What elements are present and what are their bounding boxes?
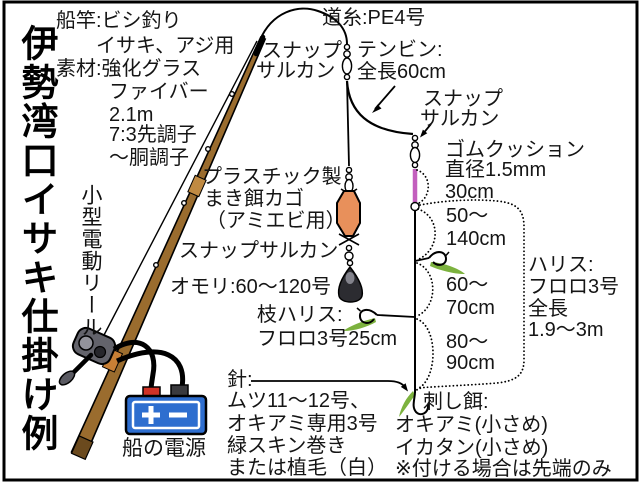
segment2-label-1: 60〜 (446, 274, 488, 296)
bait-label-3: イカタン(小さめ) (395, 437, 548, 459)
snap-swivel-right (410, 135, 419, 167)
snap-top-label-2: サルカン (256, 60, 335, 82)
harisu-label-2: フロロ3号 (528, 276, 619, 298)
material-label-4: 7:3先調子 (109, 124, 197, 146)
segment2-label-2: 70cm (446, 297, 495, 319)
rod-use-label-2: イサキ、アジ用 (96, 35, 234, 57)
reel-label: 小型電動リール (75, 184, 105, 338)
main-line-label: 道糸:PE4号 (322, 7, 425, 29)
hook-label-3: オキアミ専用3号 (227, 413, 378, 435)
power-label: 船の電源 (122, 438, 206, 460)
fishing-rig-diagram: 伊勢湾口イサキ仕掛け例 小型電動リール 船竿:ビシ釣り イサキ、アジ用 素材:強… (0, 0, 640, 486)
cage-label-3: （アミエビ用） (206, 210, 346, 232)
sinker-highlight (346, 272, 355, 284)
harisu-label-1: ハリス: (528, 254, 594, 276)
battery-minus-icon (169, 413, 187, 418)
cage-label-2: まき餌カゴ (204, 188, 304, 210)
material-label-5: 〜胴調子 (109, 147, 189, 169)
material-label-1: 素材:強化グラス (56, 58, 201, 80)
boat-battery (126, 385, 206, 434)
rod-use-label-1: 船竿:ビシ釣り (56, 10, 182, 32)
cushion-label-3: 30cm (445, 181, 494, 203)
branch-leader-label-1: 枝ハリス: (257, 304, 343, 326)
harisu-label-3: 全長 (528, 298, 568, 320)
snap-swivel-top (342, 44, 351, 79)
branch-hook-1 (415, 252, 465, 274)
segment1-label-2: 140cm (446, 228, 506, 250)
hook-label-2: ムツ11〜12号、 (227, 390, 370, 412)
cushion-label-1: ゴムクッション (445, 139, 585, 161)
hook-label-4: 緑スキン巻き (227, 435, 346, 457)
snap-swivel-cage-label: スナップサルカン (179, 240, 338, 262)
snap-right-label-1: スナップ (423, 88, 503, 110)
bait-label-4: ※付ける場合は先端のみ (395, 458, 612, 480)
hook-pointer-line (251, 381, 406, 388)
branch-leader-label-2: フロロ3号25cm (257, 328, 397, 350)
bait-label-2: オキアミ(小さめ) (395, 414, 548, 436)
tenbin-label-2: 全長60cm (357, 61, 446, 83)
page-title: 伊勢湾口イサキ仕掛け例 (9, 24, 63, 453)
material-label-2: ファイバー (109, 81, 209, 103)
hook-label-1: 針: (227, 369, 253, 391)
material-label-3: 2.1m (109, 104, 153, 126)
sinker-label: オモリ:60〜120号 (170, 276, 331, 298)
segment3-label-1: 80〜 (446, 331, 488, 353)
tenbin-label-1: テンビン: (357, 39, 443, 61)
hook-label-5: または植毛（白） (227, 457, 387, 479)
snap-right-label-2: サルカン (420, 108, 499, 130)
segment3-label-2: 90cm (446, 352, 495, 374)
cage-label-1: プラスチック製 (202, 166, 342, 188)
snap-top-label-1: スナップ (262, 40, 342, 62)
bait-label-1: 刺し餌: (423, 391, 489, 413)
reel-crank-arm (72, 355, 91, 374)
segment1-label-1: 50〜 (446, 205, 488, 227)
cushion-label-2: 直径1.5mm (445, 159, 546, 181)
harisu-label-4: 1.9〜3m (528, 319, 604, 341)
